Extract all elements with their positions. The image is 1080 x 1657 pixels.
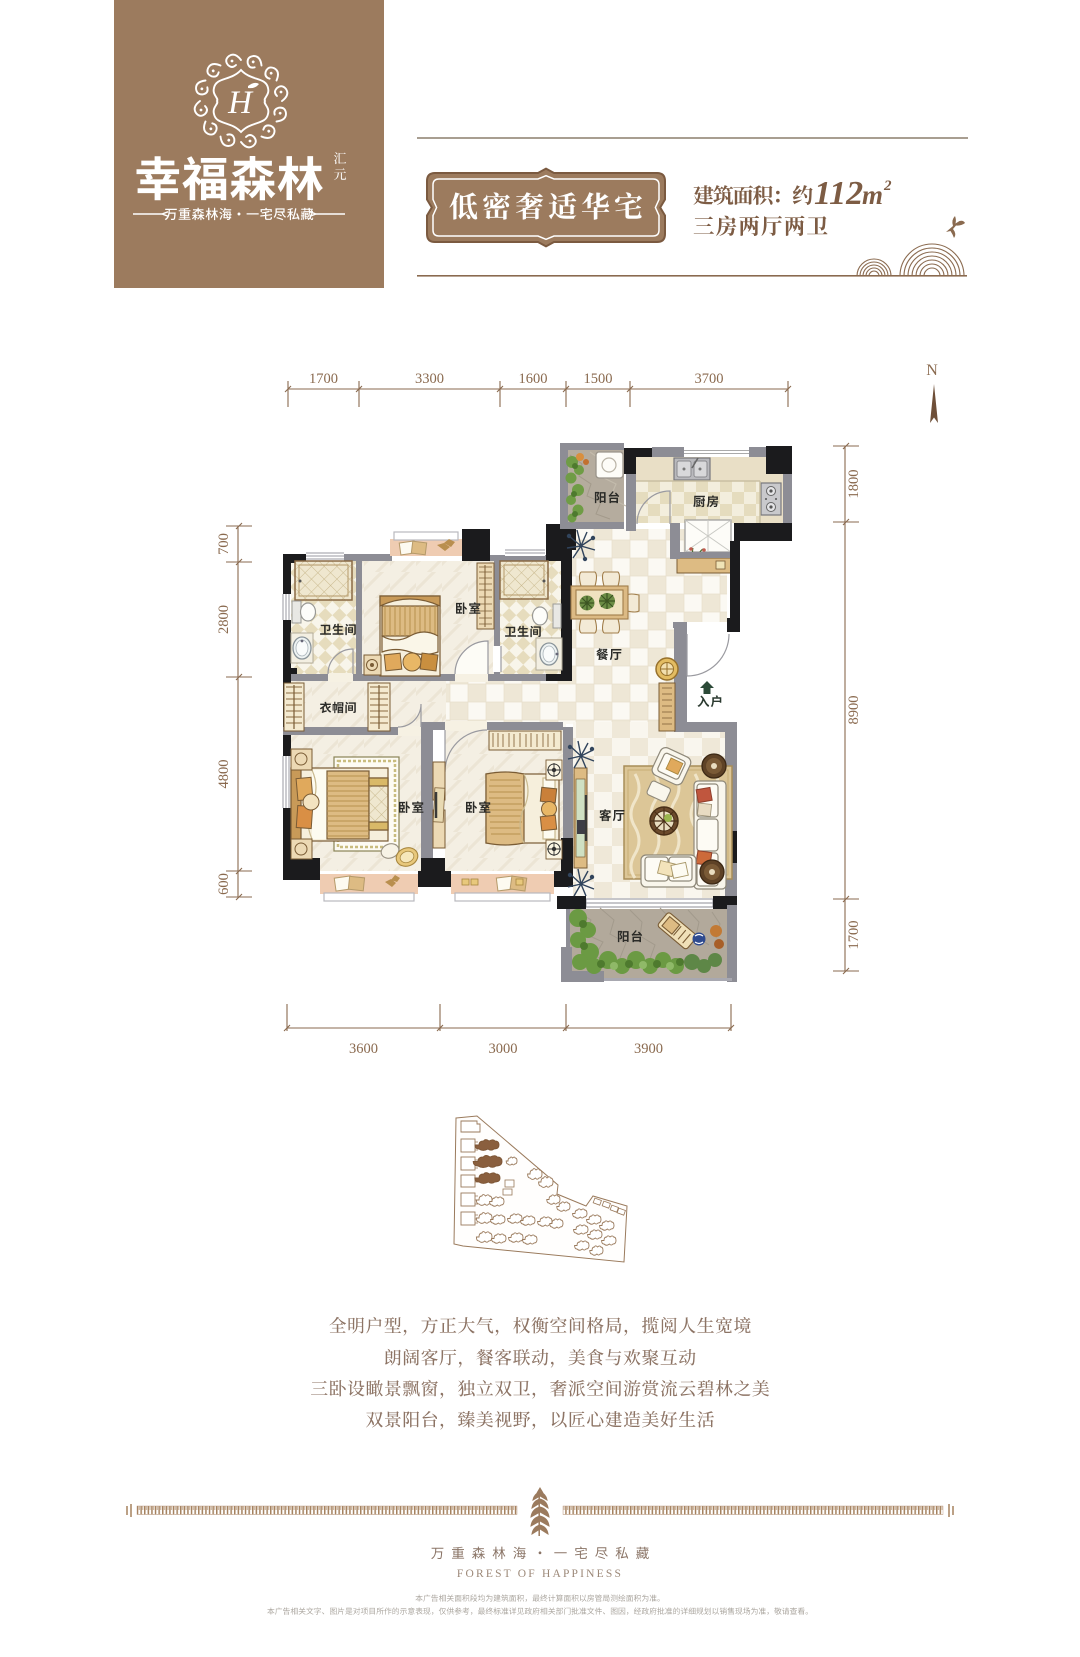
svg-text:2: 2 bbox=[883, 178, 892, 194]
svg-text:3600: 3600 bbox=[349, 1041, 378, 1057]
svg-text:3300: 3300 bbox=[415, 371, 444, 387]
svg-text:3700: 3700 bbox=[695, 371, 724, 387]
svg-text:2800: 2800 bbox=[216, 605, 232, 634]
svg-text:1700: 1700 bbox=[846, 921, 862, 950]
svg-text:N: N bbox=[926, 362, 938, 379]
svg-text:3900: 3900 bbox=[634, 1041, 663, 1057]
svg-text:112: 112 bbox=[814, 175, 863, 212]
svg-text:1700: 1700 bbox=[309, 371, 338, 387]
svg-text:1500: 1500 bbox=[584, 371, 613, 387]
svg-text:1800: 1800 bbox=[846, 470, 862, 499]
svg-text:m: m bbox=[862, 180, 883, 210]
svg-text:H: H bbox=[227, 85, 254, 121]
svg-text:FOREST OF HAPPINESS: FOREST OF HAPPINESS bbox=[457, 1568, 623, 1580]
svg-text:3000: 3000 bbox=[489, 1041, 518, 1057]
svg-text:600: 600 bbox=[216, 873, 232, 895]
svg-text:700: 700 bbox=[216, 533, 232, 555]
svg-text:8900: 8900 bbox=[846, 696, 862, 725]
svg-text:4800: 4800 bbox=[216, 760, 232, 789]
svg-text:1600: 1600 bbox=[519, 371, 548, 387]
